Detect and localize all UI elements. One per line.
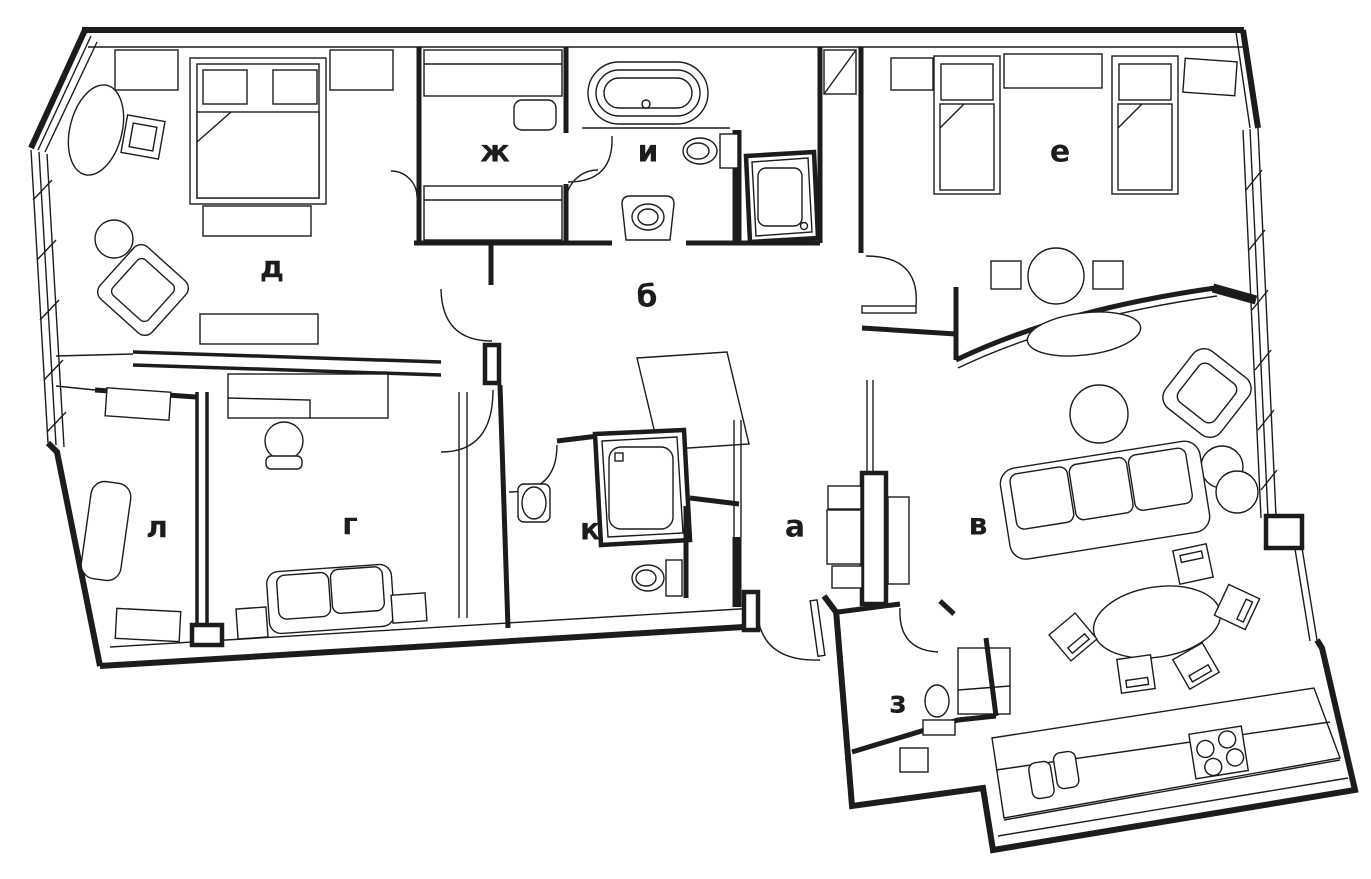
cistern <box>666 560 682 596</box>
room-label-v: в <box>969 508 988 543</box>
hall-wardrobe-icon <box>827 486 862 588</box>
console-shelf-icon <box>200 314 318 344</box>
room-a-entrance-hall <box>757 380 909 660</box>
room-k-bathroom <box>500 385 741 628</box>
headboard-shelf-icon <box>1004 54 1102 88</box>
pillow-icon <box>1119 64 1171 100</box>
room-i-bathroom <box>568 62 818 243</box>
shelf-icon <box>105 388 171 420</box>
entry-door <box>757 600 825 660</box>
stool-icon <box>95 220 133 258</box>
nightstand-icon <box>115 50 178 90</box>
room-label-g: г <box>342 508 358 543</box>
office-chair-icon <box>265 422 303 469</box>
shelf-icon <box>115 608 180 641</box>
pillow-icon <box>203 70 247 104</box>
wall-k-left <box>500 385 508 628</box>
facade-pier <box>1266 516 1302 548</box>
radiator-icon <box>891 58 933 90</box>
closet-door-arc <box>391 171 417 197</box>
room-v-living <box>998 306 1260 693</box>
sofa-two-seat-icon <box>266 564 395 635</box>
washbasin-icon <box>622 196 674 240</box>
wall-l-g <box>197 392 207 627</box>
door-arc <box>866 256 916 306</box>
door-leaf <box>810 600 825 656</box>
closet-shelf-icon <box>424 50 562 96</box>
pillow-icon <box>941 64 993 100</box>
door-arc-zh-i <box>568 136 612 182</box>
dining-chair-icon <box>1117 655 1155 693</box>
window-band-left <box>31 150 66 447</box>
room-label-b: б <box>637 280 658 315</box>
toilet-icon <box>632 560 682 596</box>
washbasin-icon <box>518 484 550 522</box>
service-shaft <box>820 47 861 253</box>
drain <box>615 453 623 461</box>
side-table-icon <box>121 115 165 159</box>
window-band-right-lower <box>1295 548 1317 641</box>
play-table-icon <box>1028 248 1084 304</box>
room-label-a: а <box>785 510 805 545</box>
bathtub-icon <box>588 62 708 124</box>
room-z-wc <box>838 601 1010 772</box>
door-arc-z <box>900 608 938 652</box>
chair-icon <box>1093 261 1123 289</box>
room-label-i: и <box>637 135 658 170</box>
door-jamb <box>485 345 499 383</box>
blanket <box>197 112 319 198</box>
door-arc-entry <box>757 610 820 660</box>
door-arc-d <box>441 289 492 341</box>
wall-b-v <box>862 328 956 334</box>
kitchen-cabinet-icon <box>958 648 1010 714</box>
entry-side-wall <box>824 596 836 612</box>
dining-chair-icon <box>1173 544 1213 584</box>
entry-jamb-pier <box>744 592 758 630</box>
wall-k-a-thin <box>734 420 741 537</box>
window-band-right <box>1243 128 1317 641</box>
double-wall-d-g <box>133 352 441 375</box>
room-l-storage <box>56 386 222 645</box>
hall-b-walls <box>637 287 1256 450</box>
desk-icon <box>228 374 388 418</box>
floor-plan-page: а б в г д е ж з и к л <box>0 0 1371 879</box>
room-e-children-bedroom <box>862 54 1237 313</box>
radiator-icon <box>1183 58 1237 96</box>
toilet-icon <box>923 685 955 735</box>
wall-z-top-right <box>940 601 954 614</box>
shower-cabin-icon <box>746 152 818 242</box>
wall-k-top <box>557 436 598 441</box>
ottoman-icon <box>1216 471 1258 513</box>
single-bed-icon <box>934 56 1000 194</box>
side-table-icon <box>236 607 268 639</box>
room-label-z: з <box>889 686 906 721</box>
room-d-master-bedroom <box>60 50 393 344</box>
wardrobe-unit-icon <box>424 186 562 240</box>
wall-a-v-thick <box>862 473 886 604</box>
wall-k-nook <box>690 498 739 504</box>
pillow-icon <box>273 70 317 104</box>
double-bed-icon <box>190 58 326 236</box>
wardrobe-rail-icon <box>79 480 132 583</box>
room-label-l: л <box>146 511 168 546</box>
shelf-icon <box>888 497 909 584</box>
bed-bench-icon <box>203 206 311 236</box>
drain <box>642 100 650 108</box>
single-bed-icon <box>1112 56 1178 194</box>
room-label-e: е <box>1050 135 1070 170</box>
room-g-study <box>228 374 467 639</box>
kitchen-sink-icon <box>1027 751 1081 800</box>
outer-wall-ne <box>1243 30 1258 128</box>
door-leaf <box>862 306 916 313</box>
room-label-k: к <box>580 513 600 548</box>
cistern <box>720 134 738 168</box>
room-label-d: д <box>260 251 284 286</box>
sofa-three-seat-icon <box>998 439 1212 561</box>
floor-plan-drawing: а б в г д е ж з и к л <box>0 0 1371 879</box>
wall-z-right <box>986 638 996 716</box>
curved-wall-end-pier <box>1213 288 1256 300</box>
room-label-zh: ж <box>480 135 510 170</box>
armchair-icon <box>1157 343 1256 443</box>
coffee-table-icon <box>1070 385 1128 443</box>
ottoman-icon <box>514 100 556 130</box>
toilet-icon <box>683 134 738 168</box>
closet-door-arc <box>566 170 598 202</box>
dining-chair-icon <box>1049 613 1097 661</box>
cistern <box>923 720 955 735</box>
shower-unit-icon <box>595 430 690 545</box>
chair-icon <box>991 261 1021 289</box>
rug-oval-icon <box>1025 306 1143 362</box>
step <box>900 748 928 772</box>
rug-oval-icon <box>60 79 133 181</box>
stove-icon <box>1189 726 1248 779</box>
nightstand-icon <box>330 50 393 90</box>
dining-chair-icon <box>1214 584 1259 629</box>
wall-pier <box>192 625 222 645</box>
wall-g-k-thin <box>459 392 467 618</box>
wall-a-v-thin <box>867 380 873 473</box>
door-e <box>862 256 916 313</box>
drain <box>801 223 808 230</box>
side-table-icon <box>391 593 427 623</box>
